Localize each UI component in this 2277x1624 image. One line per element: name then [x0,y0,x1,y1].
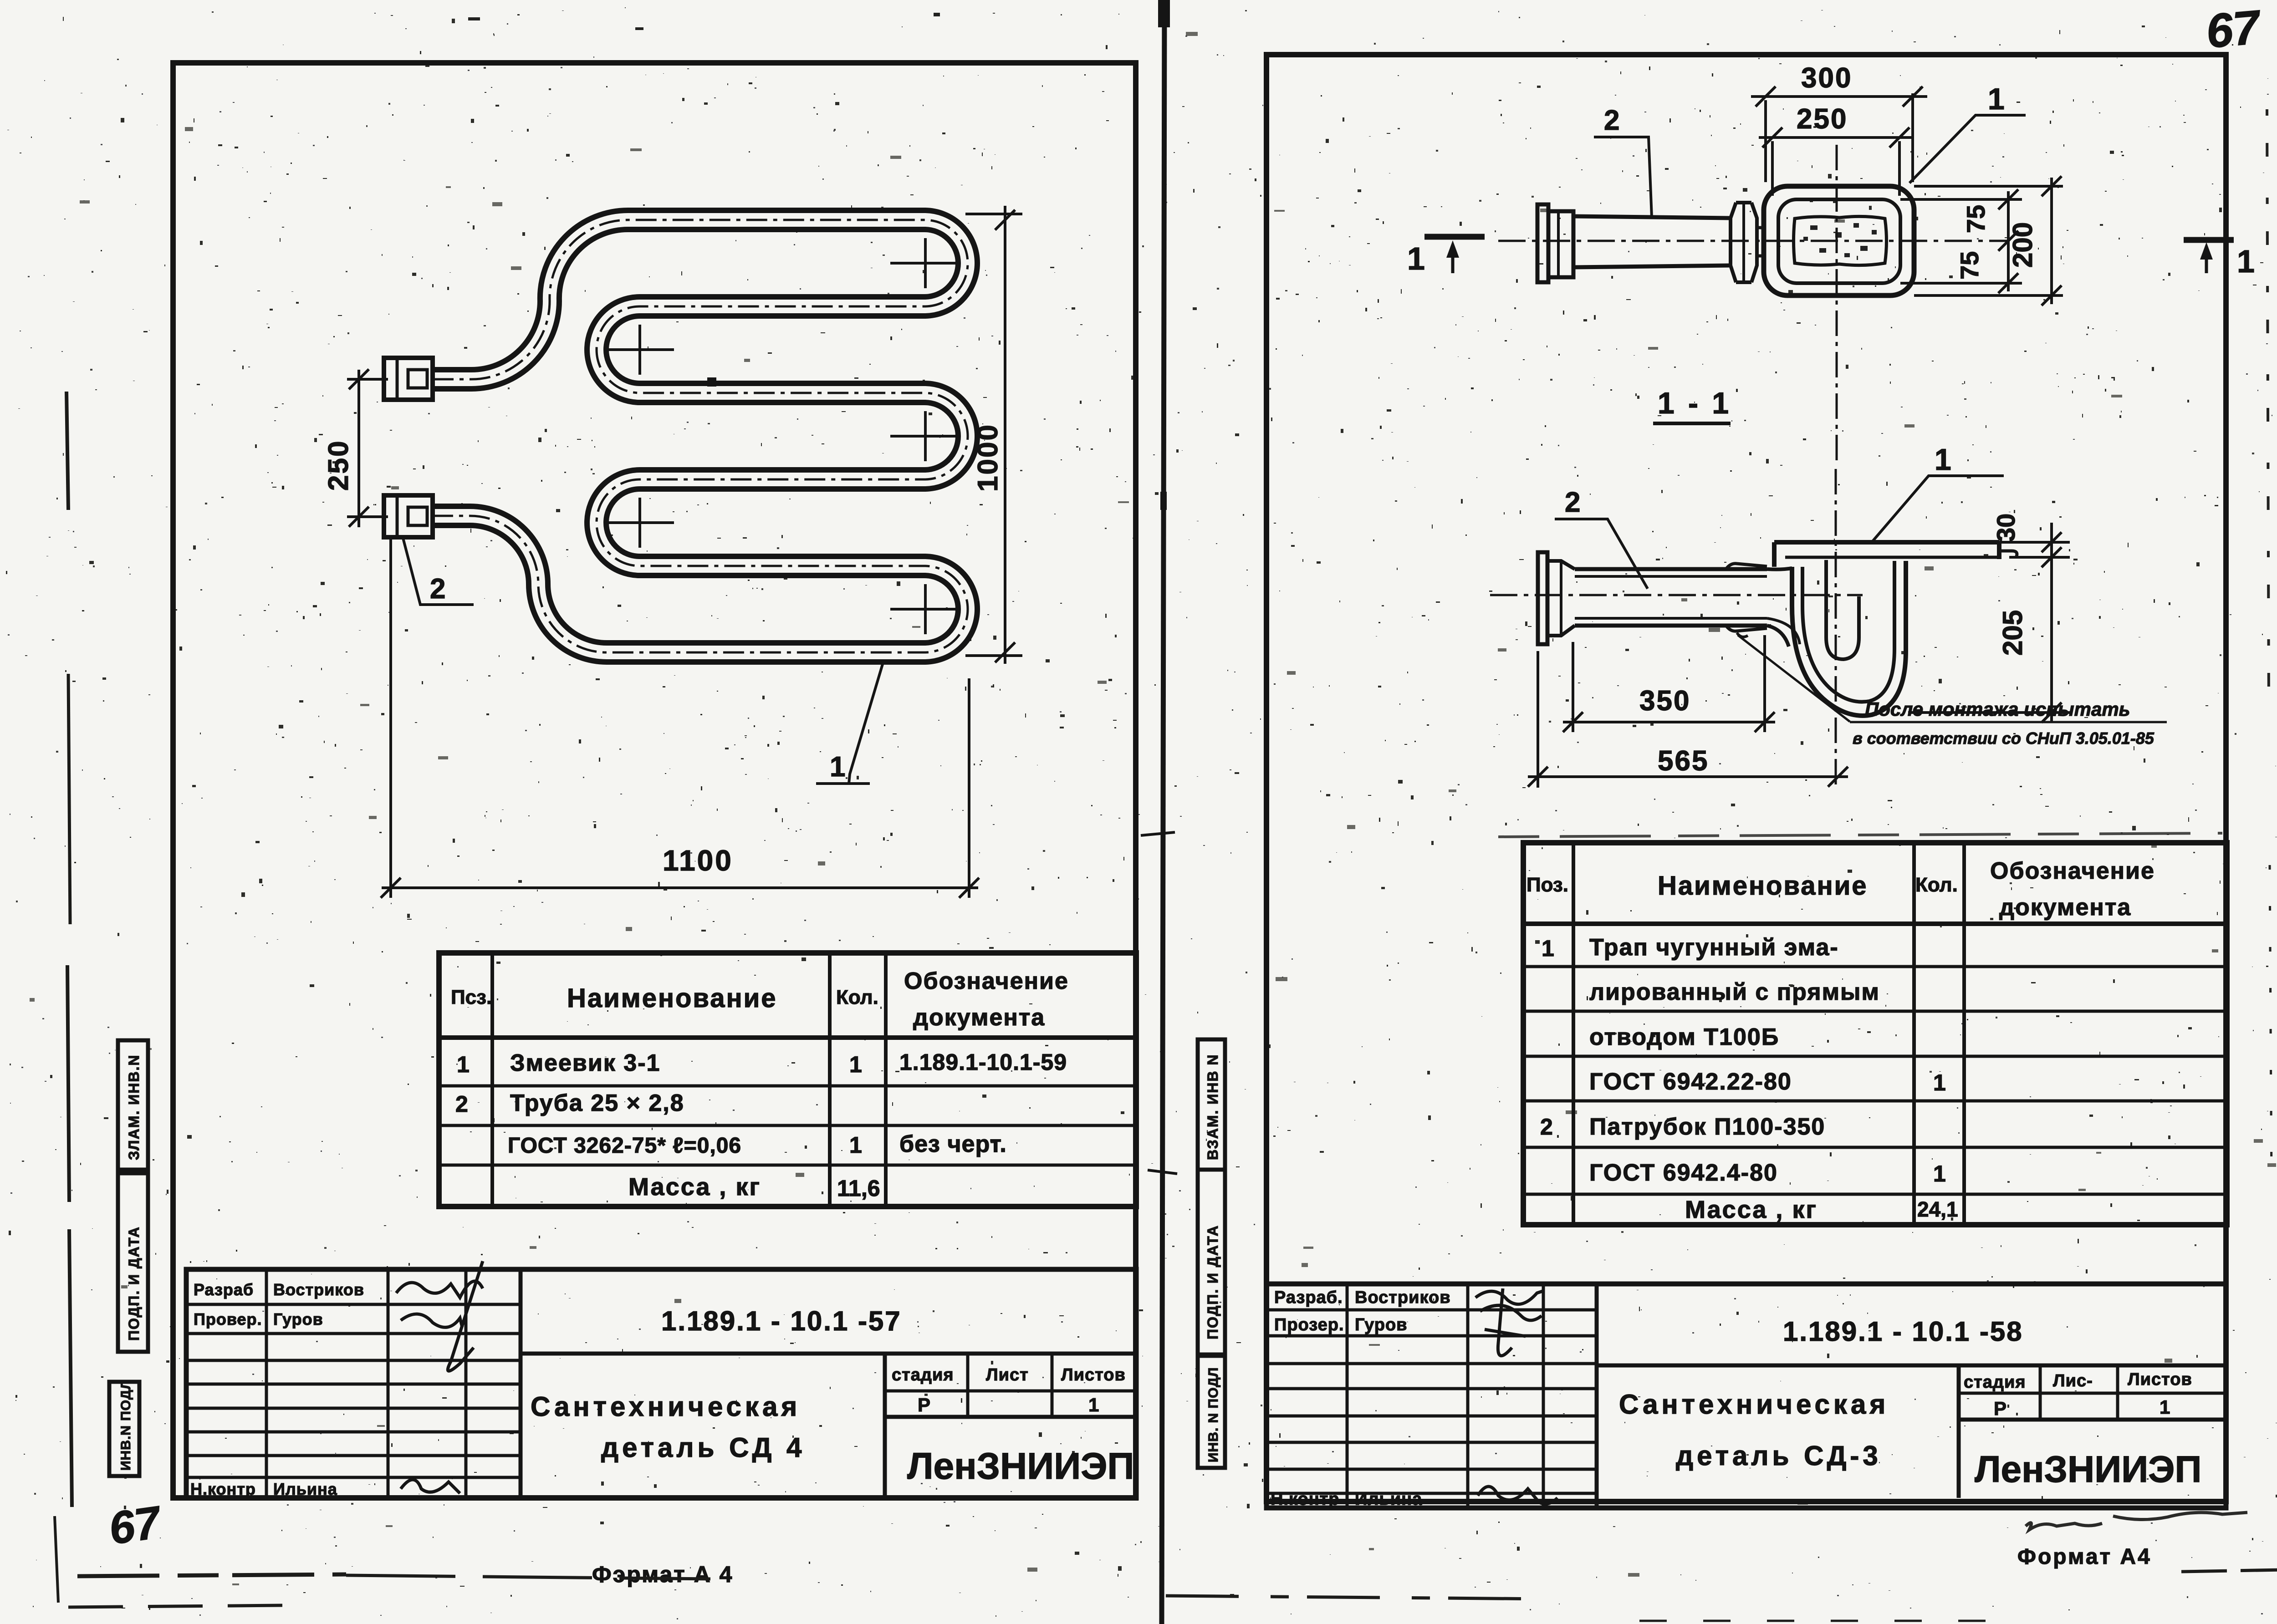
svg-text:1: 1 [1933,1070,1946,1095]
svg-text:2: 2 [1565,487,1580,518]
svg-text:После монтажа испытать: После монтажа испытать [1865,698,2130,720]
svg-text:1: 1 [849,1132,862,1158]
svg-text:Обозначение: Обозначение [1990,858,2155,884]
svg-text:Н.контр: Н.контр [190,1480,256,1498]
svg-text:Наименование: Наименование [1658,871,1868,901]
svg-text:Гуров: Гуров [273,1310,323,1329]
svg-text:стадия: стадия [892,1365,954,1385]
svg-text:1: 1 [1542,936,1554,961]
svg-text:ПОДП. И ДАТА: ПОДП. И ДАТА [126,1226,142,1341]
svg-text:1: 1 [1988,82,2005,116]
svg-text:1 - 1: 1 - 1 [1658,386,1731,420]
svg-text:Прозер.: Прозер. [1274,1315,1344,1334]
svg-text:350: 350 [1639,685,1690,717]
svg-text:Р: Р [918,1394,930,1415]
svg-text:ВЗАМ. ИНВ N: ВЗАМ. ИНВ N [1205,1054,1221,1161]
svg-text:ЛенЗНИИЭП: ЛенЗНИИЭП [907,1446,1134,1487]
svg-text:Фэрмат А 4: Фэрмат А 4 [592,1562,734,1587]
svg-text:30: 30 [1991,514,2020,542]
svg-text:1000: 1000 [972,423,1004,492]
svg-text:Масса , кг: Масса , кг [1685,1196,1818,1223]
svg-text:Змеевик 3-1: Змеевик 3-1 [510,1050,660,1076]
svg-text:Лист: Лист [986,1365,1029,1385]
svg-text:Листов: Листов [1061,1365,1126,1385]
svg-text:1: 1 [1407,241,1425,276]
svg-text:1100: 1100 [663,844,733,877]
svg-text:67: 67 [106,1497,165,1554]
svg-text:1: 1 [1088,1394,1099,1415]
svg-text:ПОДП. И ДАТА: ПОДП. И ДАТА [1205,1225,1221,1339]
svg-text:565: 565 [1658,745,1709,777]
svg-text:1.189.1-10.1-59: 1.189.1-10.1-59 [899,1049,1067,1075]
svg-text:Ильина: Ильина [273,1480,337,1498]
svg-text:Востриков: Востриков [273,1280,364,1299]
svg-text:1.189.1 - 10.1 -58: 1.189.1 - 10.1 -58 [1783,1316,2023,1347]
svg-text:24,1: 24,1 [1917,1197,1958,1221]
svg-text:Разраб.: Разраб. [1274,1288,1343,1307]
svg-text:Востриков: Востриков [1355,1288,1451,1307]
svg-text:1: 1 [2160,1396,2170,1418]
svg-text:75: 75 [1961,205,1990,233]
svg-text:деталь СД-3: деталь СД-3 [1676,1441,1882,1471]
svg-text:Ильина: Ильина [1355,1490,1422,1509]
svg-text:1: 1 [2237,244,2255,279]
svg-text:ЛенЗНИИЭП: ЛенЗНИИЭП [1975,1449,2201,1490]
svg-text:11,6: 11,6 [837,1176,880,1201]
svg-text:2: 2 [1540,1114,1553,1140]
svg-text:Наименование: Наименование [567,983,777,1013]
svg-text:205: 205 [1997,610,2028,656]
svg-text:Поз.: Поз. [1527,874,1568,896]
svg-text:2: 2 [430,573,445,605]
svg-text:1.189.1 - 10.1 -57: 1.189.1 - 10.1 -57 [661,1306,902,1336]
svg-text:Кол.: Кол. [836,986,878,1008]
svg-text:Сантехническая: Сантехническая [531,1391,801,1422]
svg-text:Листов: Листов [2128,1370,2192,1389]
svg-text:2: 2 [455,1091,468,1117]
svg-text:ЗЛАМ. ИНВ.N: ЗЛАМ. ИНВ.N [126,1054,142,1160]
svg-text:Формат А4: Формат А4 [2017,1545,2152,1569]
svg-text:200: 200 [2007,222,2038,268]
svg-text:документа: документа [913,1004,1045,1031]
svg-text:Провер.: Провер. [194,1310,262,1329]
svg-text:1: 1 [1935,443,1951,476]
svg-text:Патрубок П100-350: Патрубок П100-350 [1589,1114,1825,1140]
svg-text:1: 1 [849,1052,862,1077]
svg-text:Обозначение: Обозначение [904,968,1069,994]
svg-text:Гуров: Гуров [1355,1315,1408,1334]
svg-text:ГОСТ 3262-75* ℓ=0,06: ГОСТ 3262-75* ℓ=0,06 [508,1134,741,1158]
svg-text:ИНВ.N ПОДЛ: ИНВ.N ПОДЛ [118,1380,133,1471]
svg-text:67: 67 [2204,0,2264,58]
svg-text:Трап чугунный эма-: Трап чугунный эма- [1589,934,1839,961]
svg-text:стадия: стадия [1964,1373,2026,1392]
svg-text:отводом Т100Б: отводом Т100Б [1589,1024,1779,1050]
svg-text:Лис-: Лис- [2053,1371,2093,1390]
svg-text:Труба 25 × 2,8: Труба 25 × 2,8 [510,1090,684,1116]
svg-text:без черт.: без черт. [899,1131,1007,1157]
svg-text:250: 250 [1797,103,1848,135]
svg-text:Пcз.: Пcз. [451,986,492,1008]
svg-text:1: 1 [830,751,845,783]
svg-text:ИНВ. N ПОДЛ: ИНВ. N ПОДЛ [1206,1367,1221,1463]
svg-text:Разраб: Разраб [194,1280,254,1299]
svg-text:Масса , кг: Масса , кг [628,1173,761,1201]
svg-text:1: 1 [457,1052,470,1077]
svg-text:ГОСТ 6942.22-80: ГОСТ 6942.22-80 [1589,1069,1792,1095]
svg-text:документа: документа [1999,894,2131,921]
svg-text:250: 250 [323,440,354,491]
svg-text:ГОСТ 6942.4-80: ГОСТ 6942.4-80 [1589,1160,1778,1186]
svg-text:2: 2 [1604,105,1619,136]
svg-text:Кол.: Кол. [1915,874,1958,896]
svg-text:Н.контр: Н.контр [1271,1490,1340,1509]
svg-text:Р: Р [1994,1398,2006,1419]
svg-text:75: 75 [1955,251,1984,280]
svg-text:Сантехническая: Сантехническая [1619,1389,1889,1420]
svg-text:300: 300 [1801,62,1852,94]
svg-text:в соответствии со СНиП 3.05.01: в соответствии со СНиП 3.05.01-85 [1853,729,2154,748]
svg-text:1: 1 [1933,1161,1946,1186]
svg-text:деталь СД 4: деталь СД 4 [601,1432,805,1463]
svg-text:лированный с прямым: лированный с прямым [1589,979,1880,1005]
